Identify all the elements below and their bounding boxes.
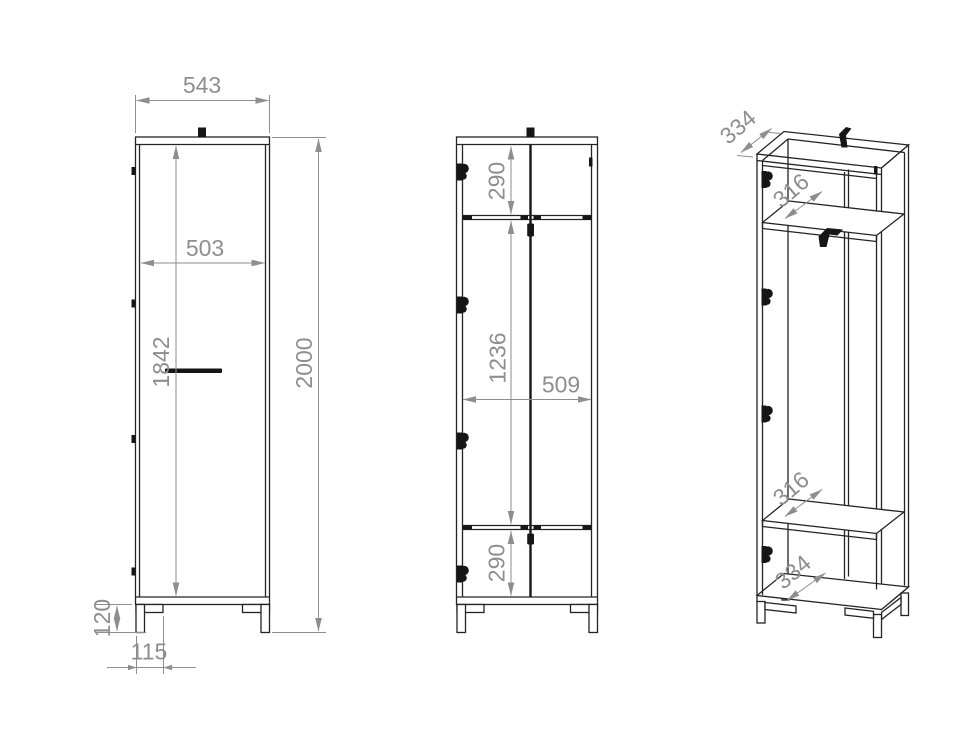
dim-middle-compartment-label: 1236 <box>485 332 511 383</box>
wardrobe-drawing: 543 503 1842 2000 120 115 <box>0 0 979 734</box>
hinge-icon <box>457 297 469 314</box>
hinge-icon <box>457 433 469 450</box>
dimension-middle-compartment: 1236 <box>485 221 512 524</box>
dim-top-compartment-label: 290 <box>484 162 510 200</box>
front-view: 543 503 1842 2000 120 115 <box>89 72 326 674</box>
hinge-icon <box>457 164 469 181</box>
dimension-door-width: 503 <box>141 235 265 263</box>
dim-total-height-label: 2000 <box>291 337 317 388</box>
dimension-total-width: 543 <box>136 72 270 133</box>
front-legs <box>136 605 270 633</box>
dim-inner-width-label: 509 <box>542 372 580 398</box>
perspective-view: 334 316 316 334 <box>715 104 909 637</box>
shelf-cam-fitting <box>527 534 534 545</box>
carcass-right-fitting-mark <box>589 158 593 167</box>
perspective-right-fitting-mark <box>874 166 878 175</box>
carcass-view: 290 1236 509 290 <box>457 128 598 633</box>
lower-shelf-edge <box>463 525 592 544</box>
dimension-bottom-compartment: 290 <box>484 531 512 596</box>
hinge-icon <box>762 546 773 563</box>
carcass-top-mount-knob <box>527 128 535 138</box>
dimension-top-compartment: 290 <box>484 147 512 215</box>
dim-bottom-compartment-label: 290 <box>484 544 510 582</box>
carcass-legs <box>457 605 598 633</box>
dim-leg-inset-label: 115 <box>131 639 168 665</box>
dimension-door-height: 1842 <box>148 146 176 596</box>
dimension-total-height: 2000 <box>272 138 326 633</box>
dimension-inner-width: 509 <box>463 372 591 400</box>
dim-leg-height-label: 120 <box>89 599 115 637</box>
dim-door-height-label: 1842 <box>148 336 174 387</box>
hinge-icon <box>762 171 773 188</box>
dim-door-width-label: 503 <box>186 235 224 261</box>
dim-total-width-label: 543 <box>183 72 221 98</box>
front-top-mount-knob <box>198 128 206 138</box>
hinge-icon <box>457 566 469 583</box>
hinge-icon <box>762 406 773 423</box>
perspective-back-right-leg <box>901 593 909 616</box>
hinge-icon <box>762 289 773 306</box>
upper-shelf-edge <box>463 216 592 237</box>
dimension-leg-inset: 115 <box>107 616 196 674</box>
technical-drawing-canvas: 543 503 1842 2000 120 115 <box>0 0 979 734</box>
shelf-cam-fitting <box>527 224 534 237</box>
